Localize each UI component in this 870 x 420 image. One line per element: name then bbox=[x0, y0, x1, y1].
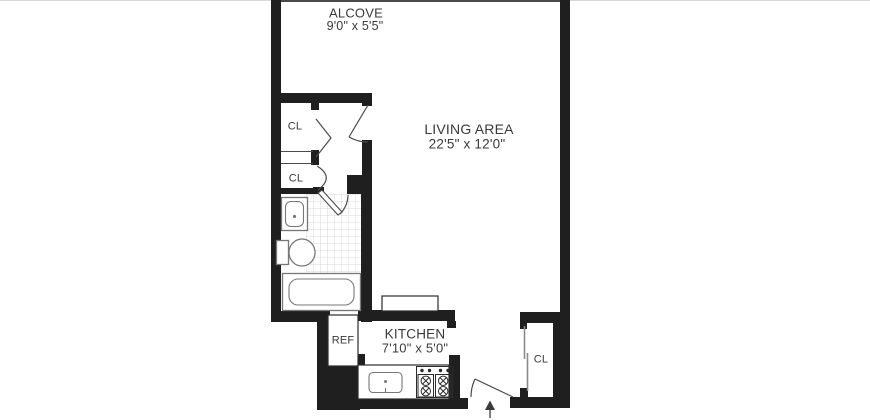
kitchen-label: KITCHEN bbox=[385, 327, 446, 341]
wall-right-exterior bbox=[560, 0, 570, 314]
entry-closet-label: CL bbox=[534, 355, 548, 366]
alcove-dimensions: 9'0" x 5'5" bbox=[327, 20, 384, 33]
wall-left-exterior bbox=[271, 0, 281, 322]
floorplan: ALCOVE 9'0" x 5'5" LIVING AREA 22'5" x 1… bbox=[0, 0, 870, 420]
bathroom-sink bbox=[282, 198, 308, 231]
wall-bathroom-right bbox=[361, 177, 372, 322]
living-area-dimensions: 22'5" x 12'0" bbox=[429, 137, 506, 151]
wall-closet1-jamb bbox=[311, 93, 319, 110]
bathroom bbox=[277, 190, 362, 311]
living-area-label: LIVING AREA bbox=[424, 122, 513, 136]
wall-bathroom-top bbox=[271, 188, 316, 194]
hall-door-panel bbox=[349, 105, 368, 137]
floorplan-drawing bbox=[0, 0, 870, 420]
closet2-door bbox=[317, 166, 326, 190]
refrigerator-label: REF bbox=[332, 336, 355, 347]
kitchen-dimensions: 7'10" x 5'0" bbox=[382, 342, 448, 355]
wall-hall-living bbox=[362, 140, 372, 177]
wall-entry-closet-right bbox=[553, 312, 570, 408]
entry-door-panel bbox=[475, 379, 513, 397]
closet1-label: CL bbox=[288, 122, 302, 133]
wall-kitchen-entry-jamb bbox=[447, 321, 456, 328]
cropped-top-wall bbox=[271, 0, 570, 2]
toilet bbox=[277, 239, 316, 266]
wall-closet-divider-jamb bbox=[311, 150, 319, 165]
wall-kitchen-bottom bbox=[317, 398, 468, 409]
entry-closet-sliding-door bbox=[525, 326, 528, 391]
kitchen-peninsula-counter bbox=[382, 296, 438, 311]
wall-entry-closet-jamb-top bbox=[520, 323, 527, 329]
entry-door bbox=[471, 379, 513, 397]
wall-entry-closet-bottom bbox=[510, 397, 570, 408]
wall-alcove-bottom bbox=[271, 93, 372, 103]
bathtub bbox=[283, 274, 361, 311]
entrance-arrow-icon bbox=[485, 401, 495, 419]
hall-entry-door bbox=[349, 105, 368, 142]
wall-kitchen-top bbox=[358, 310, 455, 321]
closet2-label: CL bbox=[289, 174, 303, 185]
wall-hall-stub-top bbox=[362, 93, 372, 106]
alcove-label: ALCOVE bbox=[329, 7, 383, 20]
entry-door-arc bbox=[471, 379, 475, 397]
closet-divider-lines bbox=[281, 152, 313, 164]
